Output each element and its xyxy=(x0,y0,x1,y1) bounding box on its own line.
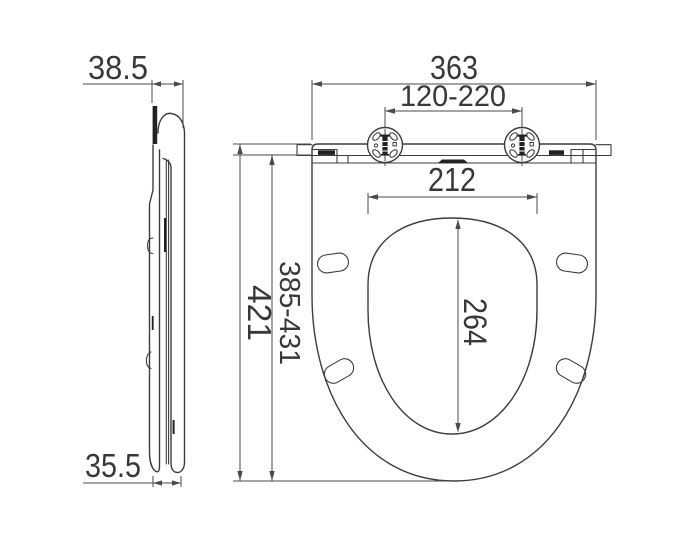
hinge-bar-right-tab xyxy=(596,145,611,156)
arrowhead xyxy=(312,81,322,86)
side-top-thickness-label: 38.5 xyxy=(88,49,148,86)
side-bottom-thickness-label: 35.5 xyxy=(85,447,141,484)
arrowhead xyxy=(586,81,596,86)
hinge-spacing-label: 120-220 xyxy=(400,80,506,113)
hinge-bolt xyxy=(382,136,387,155)
side-tick xyxy=(173,420,175,434)
side-ring-profile xyxy=(158,113,185,472)
hinge-left xyxy=(368,124,403,166)
arrowhead xyxy=(368,194,378,199)
side-bumper-lower xyxy=(146,352,151,369)
hinge-bar-left-tab xyxy=(297,145,312,156)
hinge-bolt-foot xyxy=(518,154,526,156)
side-lid-edge xyxy=(153,106,158,144)
bowl-depth-label: 264 xyxy=(457,298,493,346)
arrowhead xyxy=(172,480,181,485)
adjustable-depth-label: 385-431 xyxy=(273,261,305,365)
dim-side-top-thickness: 38.5 xyxy=(83,49,183,128)
arrowhead xyxy=(512,108,522,113)
dim-bowl-depth: 264 xyxy=(455,220,493,433)
bowl-opening xyxy=(368,218,537,434)
dim-bowl-width: 212 xyxy=(368,161,537,214)
hinge-bolt-foot xyxy=(381,154,389,156)
side-tick xyxy=(164,218,166,252)
arrowhead xyxy=(237,144,242,154)
technical-drawing-canvas: 38.5 35.5 363 120-220 xyxy=(0,0,700,557)
arrowhead xyxy=(152,81,161,86)
side-tick xyxy=(152,316,154,330)
arrowhead xyxy=(174,81,183,86)
dim-hinge-spacing: 120-220 xyxy=(385,80,522,124)
bar-plate-mark xyxy=(318,150,335,155)
mounting-slots xyxy=(316,252,589,387)
slot-top-left xyxy=(316,252,349,274)
slot-top-right xyxy=(555,252,588,274)
arrowhead xyxy=(455,220,460,230)
arrowhead xyxy=(153,480,162,485)
bowl-width-label: 212 xyxy=(428,161,476,198)
arrowhead xyxy=(269,155,274,165)
arrowhead xyxy=(527,194,537,199)
hinge-bolt xyxy=(519,136,524,155)
side-view xyxy=(146,106,184,473)
arrowhead xyxy=(237,471,242,481)
side-lid-profile xyxy=(150,145,160,472)
arrowhead xyxy=(269,471,274,481)
arrowhead xyxy=(385,108,395,113)
side-bumper-upper xyxy=(148,238,153,254)
hinge-right xyxy=(505,124,540,166)
slot-bottom-right xyxy=(553,355,589,386)
arrowhead xyxy=(455,423,460,433)
drawing-svg: 38.5 35.5 363 120-220 xyxy=(0,0,700,557)
bar-plate-mark xyxy=(549,150,564,155)
